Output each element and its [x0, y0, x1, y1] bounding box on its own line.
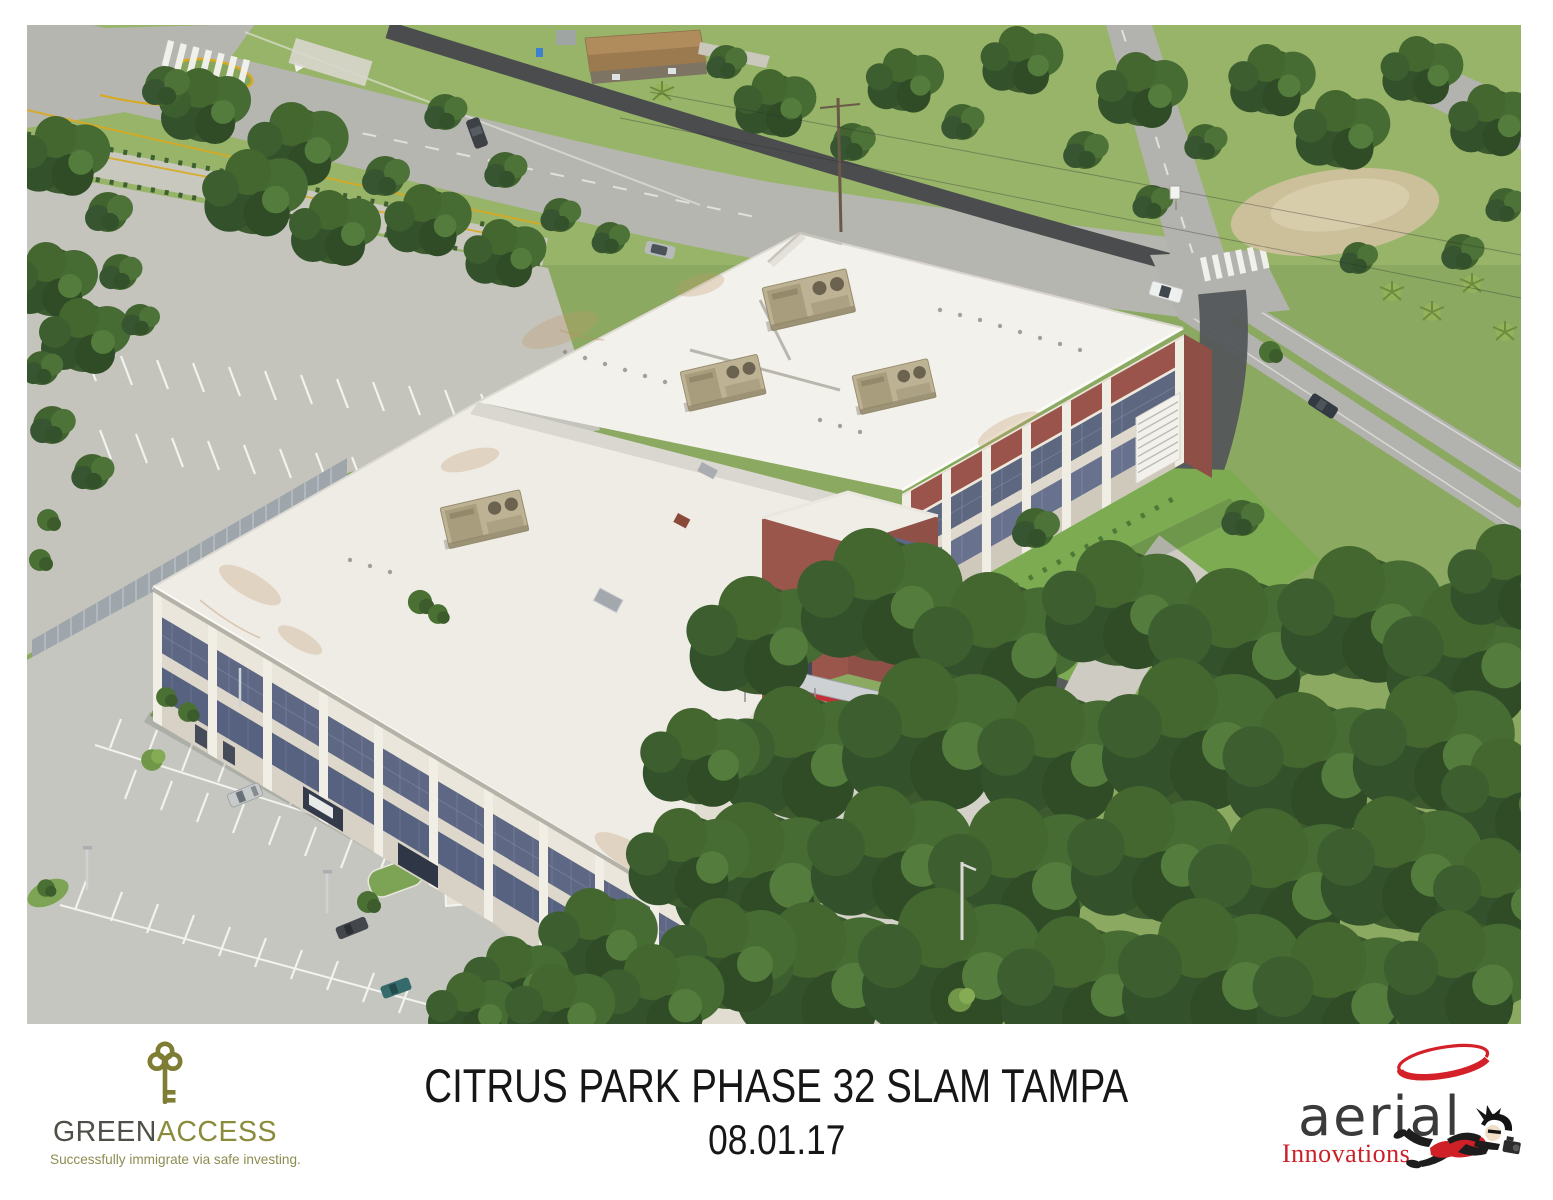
greenaccess-word-green: GREEN [53, 1116, 157, 1148]
camera-icon [1502, 1136, 1522, 1155]
aerial-photo [27, 25, 1521, 1024]
portable-toilet [536, 48, 543, 57]
photo-date: 08.01.17 [708, 1116, 845, 1164]
photo-title: CITRUS PARK PHASE 32 SLAM TAMPA [425, 1058, 1129, 1113]
greenaccess-tagline: Successfully immigrate via safe investin… [50, 1152, 280, 1167]
aerial-scene [27, 25, 1521, 1024]
aerial-innovations-logo: aerial Innovations [1262, 1036, 1540, 1192]
key-icon [143, 1040, 187, 1114]
greenaccess-logo: GREENACCESS Successfully immigrate via s… [50, 1040, 280, 1167]
road-sign [1170, 186, 1180, 199]
greenaccess-word-access: ACCESS [157, 1116, 277, 1148]
innovations-wordmark: Innovations [1282, 1139, 1410, 1168]
east-end-wall [1184, 334, 1212, 478]
shed [556, 30, 576, 45]
photo-sheet: CITRUS PARK PHASE 32 SLAM TAMPA 08.01.17… [0, 0, 1553, 1200]
swoosh-icon [1399, 1045, 1488, 1077]
greenaccess-wordmark: GREENACCESS [50, 1116, 280, 1149]
